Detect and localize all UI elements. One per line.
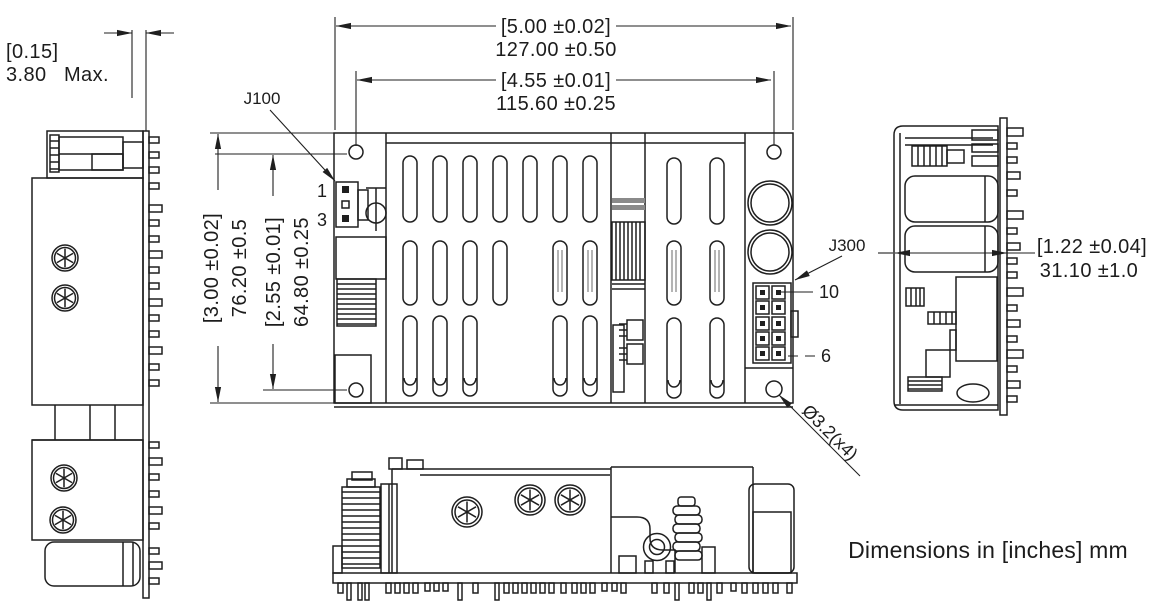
bottom-capacitor xyxy=(45,542,140,586)
standoff xyxy=(366,188,386,231)
outline xyxy=(894,126,998,410)
callout-mounting-hole: Ø3.2(x4) xyxy=(779,395,862,476)
dim-overall-width-inches: [5.00 ±0.02] xyxy=(501,16,611,38)
dim-overall-height-inches: [1.22 ±0.04] xyxy=(1037,236,1147,258)
ridged-capacitor xyxy=(342,472,380,568)
j300-pin6-label: 6 xyxy=(821,346,831,366)
mechanical-drawing-page: [5.00 ±0.02] 127.00 ±0.50 [4.55 ±0.01] 1… xyxy=(0,0,1152,601)
vent-slots-section2 xyxy=(667,158,724,398)
dim-overall-width-mm: 127.00 ±0.50 xyxy=(495,39,616,61)
dim-pcb-thickness-qualifier: Max. xyxy=(64,64,109,86)
left-side-view xyxy=(32,131,162,598)
dim-overall-height-mm: 31.10 ±1.0 xyxy=(1040,260,1138,282)
j100-connector xyxy=(336,182,368,227)
bulk-capacitors xyxy=(905,176,998,272)
toroid-inductor xyxy=(644,534,675,574)
dim-mounting-depth-inches: [2.55 ±0.01] xyxy=(263,217,285,327)
mounting-hole-callout-label: Ø3.2(x4) xyxy=(798,401,862,465)
dim-mounting-width-mm: 115.60 ±0.25 xyxy=(496,93,616,115)
units-note: Dimensions in [inches] mm xyxy=(848,537,1128,563)
ac-inlet-connector xyxy=(47,131,143,178)
j300-connector xyxy=(753,283,798,363)
dim-mounting-width: [4.55 ±0.01] 115.60 ±0.25 xyxy=(356,70,774,146)
cover-screws xyxy=(50,245,78,533)
heatsink-gap xyxy=(612,198,645,392)
right-side-view xyxy=(894,118,1023,415)
dim-pcb-thickness-mm: 3.80 xyxy=(6,64,47,86)
input-component xyxy=(336,237,386,279)
j300-label: J300 xyxy=(829,236,866,255)
output-capacitors xyxy=(748,181,792,274)
front-view xyxy=(333,458,797,600)
choke-ridged xyxy=(337,279,376,326)
pcb-edge xyxy=(143,131,149,598)
vent-slots-section1 xyxy=(403,156,597,396)
top-connector-section xyxy=(905,130,998,166)
coil-stack xyxy=(673,497,702,560)
j300-pin10-label: 10 xyxy=(819,282,839,302)
j100-label: J100 xyxy=(244,89,281,108)
top-view xyxy=(334,133,798,407)
dim-mounting-width-inches: [4.55 ±0.01] xyxy=(501,70,611,92)
mounting-holes xyxy=(349,145,782,397)
pcb-bar xyxy=(333,573,797,583)
dim-overall-depth-mm: 76.20 ±0.5 xyxy=(229,219,251,317)
dim-pcb-thickness: [0.15] 3.80 Max. xyxy=(6,30,174,131)
pcb-pins xyxy=(149,137,162,584)
dim-pcb-thickness-inches: [0.15] xyxy=(6,41,58,63)
cover-body xyxy=(32,178,143,540)
pcb-edge-right xyxy=(1000,118,1007,415)
dim-overall-depth-inches: [3.00 ±0.02] xyxy=(201,213,223,323)
transformer-section xyxy=(906,277,997,402)
j100-pin3-label: 3 xyxy=(317,210,327,230)
mechanical-drawing: [5.00 ±0.02] 127.00 ±0.50 [4.55 ±0.01] 1… xyxy=(0,0,1152,601)
output-header xyxy=(749,484,794,573)
pcb-pins-bottom xyxy=(338,583,792,600)
pcb-pins-right xyxy=(1007,128,1023,402)
callout-j100: J100 1 3 xyxy=(244,89,335,230)
j100-pin1-label: 1 xyxy=(317,181,327,201)
dim-mounting-depth-mm: 64.80 ±0.25 xyxy=(291,217,313,327)
